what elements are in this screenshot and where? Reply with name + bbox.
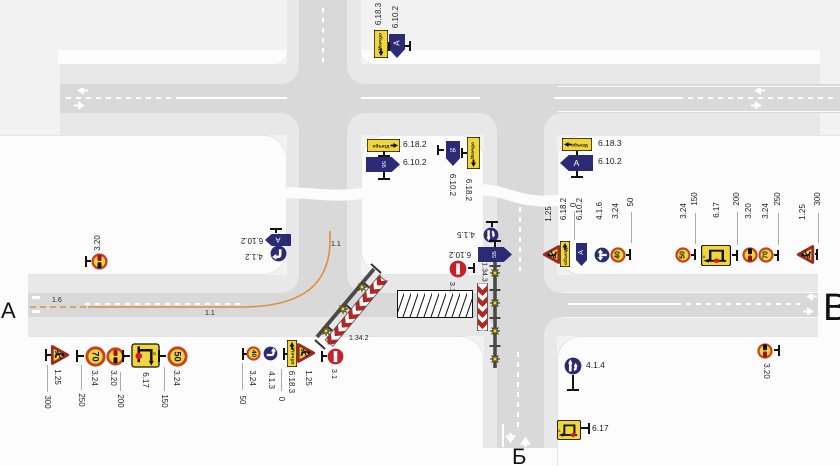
svg-text:объезд: объезд bbox=[471, 142, 477, 159]
svg-text:А: А bbox=[392, 40, 401, 46]
svg-text:5Б: 5Б bbox=[450, 147, 457, 153]
svg-text:объезд: объезд bbox=[571, 141, 588, 147]
svg-text:5Б: 5Б bbox=[492, 251, 498, 258]
svg-text:А: А bbox=[702, 254, 705, 258]
svg-text:50: 50 bbox=[679, 251, 686, 259]
svg-text:объезд: объезд bbox=[378, 33, 384, 50]
svg-text:70: 70 bbox=[90, 351, 100, 361]
svg-text:объезд: объезд bbox=[288, 348, 294, 365]
svg-text:А: А bbox=[578, 249, 585, 254]
svg-text:5Б: 5Б bbox=[380, 161, 386, 168]
svg-text:40: 40 bbox=[615, 251, 622, 259]
svg-text:50: 50 bbox=[172, 351, 182, 361]
svg-text:70: 70 bbox=[762, 251, 769, 259]
svg-text:Б: Б bbox=[153, 351, 156, 356]
svg-text:объезд: объезд bbox=[562, 248, 568, 265]
svg-text:40: 40 bbox=[250, 350, 257, 358]
svg-text:А: А bbox=[573, 158, 579, 168]
svg-text:объезд: объезд bbox=[373, 142, 390, 148]
svg-text:А: А bbox=[275, 235, 280, 244]
